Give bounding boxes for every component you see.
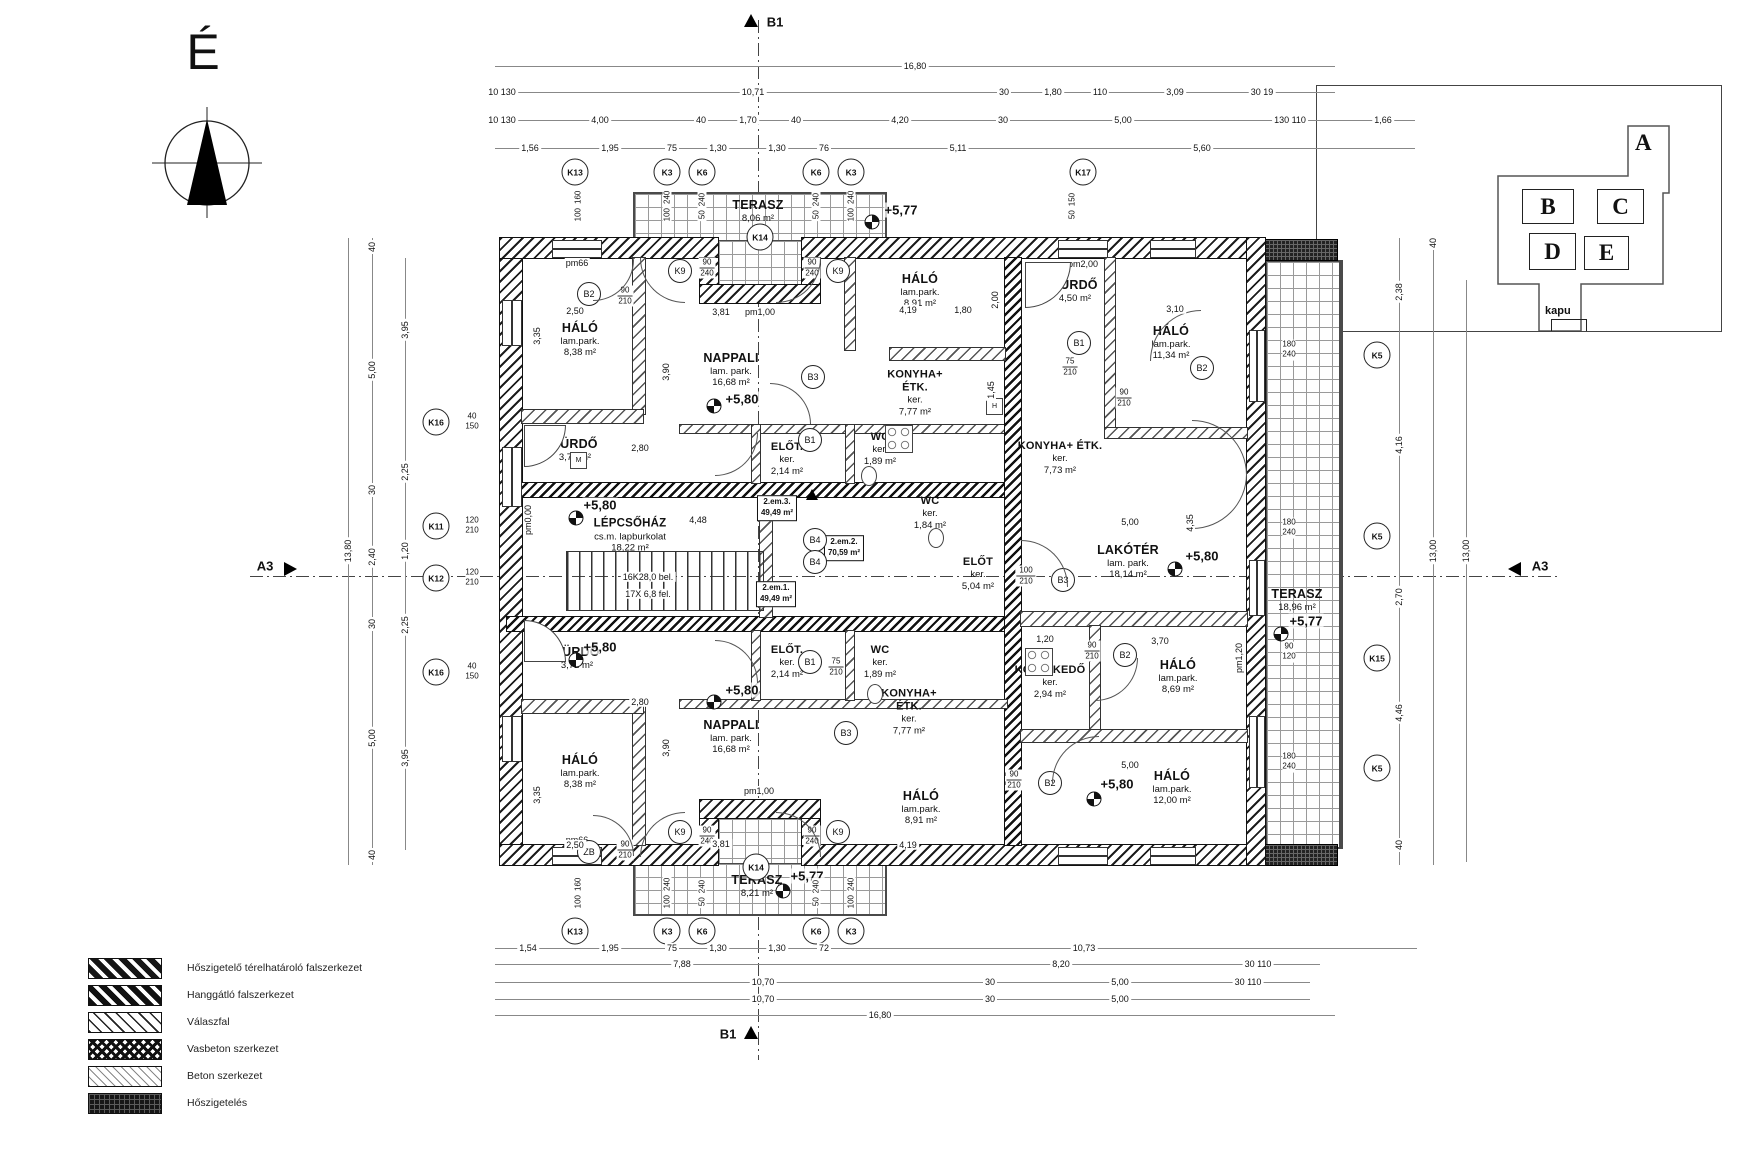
wall-partition: [890, 348, 1005, 360]
dim: 2,80: [629, 697, 651, 707]
dim-line: [495, 999, 1310, 1000]
wall-partition: [1105, 258, 1115, 433]
wall-partition: [1021, 612, 1247, 626]
dim: 1,30: [707, 143, 729, 153]
wall-partition: [846, 631, 854, 700]
dim: 40: [694, 115, 708, 125]
dim: 2,25: [400, 461, 410, 483]
wall-partition: [522, 700, 643, 713]
dim: 4,35: [1185, 512, 1195, 534]
stair-note-up: 17X 6,8 fel.: [623, 589, 673, 599]
dim: 75: [665, 943, 679, 953]
dim: 3,35: [532, 784, 542, 806]
dim: 1,20: [1034, 634, 1056, 644]
opening-size: 180240: [1282, 340, 1295, 361]
wall-party-vertical: [1005, 258, 1021, 845]
grid-marker: K6: [689, 918, 716, 945]
dim: 3,70: [1149, 636, 1171, 646]
terrace-door: [1249, 560, 1265, 616]
wc-fixture: [861, 466, 877, 486]
room-label-stair: LÉPCSŐHÁZ cs.m. lapburkolat 18,22 m²: [594, 518, 667, 555]
window: [502, 447, 522, 507]
door-swing: [1095, 658, 1138, 701]
dim: 2,00: [990, 289, 1000, 311]
opening-size: 120210: [465, 568, 478, 589]
wc-fixture: [928, 528, 944, 548]
dim: 10,71: [740, 87, 767, 97]
dim: 5,00: [1109, 977, 1131, 987]
dim: 30: [367, 617, 377, 631]
wall-partition: [1021, 730, 1247, 742]
legend: Hőszigetelő térelhatároló falszerkezet H…: [88, 958, 488, 1128]
grid-marker: K16: [423, 659, 450, 686]
dim: 30: [367, 483, 377, 497]
door-swing: [593, 815, 634, 856]
dim: 1,56: [519, 143, 541, 153]
unit-id: 2.em.2.: [828, 537, 860, 548]
grid-marker: K16: [423, 409, 450, 436]
opening-size: 100240: [663, 876, 672, 911]
dim: 2,40: [367, 546, 377, 568]
legend-swatch-reinforced-concrete: [88, 1039, 162, 1060]
dim: 3,95: [400, 319, 410, 341]
grid-marker: K14: [743, 854, 770, 881]
grid-marker: K3: [654, 159, 681, 186]
door-size: 75210: [828, 657, 845, 678]
dim: 2,50: [564, 840, 586, 850]
dim: 2,80: [629, 443, 651, 453]
section-arrow-b1-bottom: [744, 1026, 758, 1039]
dim: 5,00: [1119, 760, 1141, 770]
level-mark-terrace: +5,77: [1289, 614, 1324, 629]
unit-area: 49,49 m²: [761, 508, 793, 519]
wall-partition: [633, 258, 645, 414]
dim: 2,25: [400, 614, 410, 636]
dim: 4,46: [1394, 702, 1404, 724]
opening-size: 40150: [465, 412, 478, 433]
legend-swatch-soundproof-wall: [88, 985, 162, 1006]
unit-area: 70,59 m²: [828, 548, 860, 559]
legend-label: Vasbeton szerkezet: [187, 1043, 278, 1055]
grid-marker: K15: [1364, 645, 1391, 672]
level-symbol: [1168, 562, 1183, 577]
dim: 1,30: [766, 943, 788, 953]
dim-line: [495, 92, 1335, 93]
terrace-door: [1249, 330, 1265, 402]
opening-size: 40150: [465, 662, 478, 683]
door-tag: B4: [803, 528, 827, 552]
door-swing: [1192, 474, 1247, 529]
level-symbol: [865, 215, 880, 230]
room-elot-top: ELŐT.ker.2,14 m²: [771, 441, 803, 477]
room-konyha-top: KONYHA+ÉTK.ker.7,77 m²: [887, 368, 943, 417]
room-halo-bottom-mid: HÁLÓlam.park.8,91 m²: [901, 789, 940, 827]
dim: 13,00: [1461, 538, 1471, 565]
terrace-right: [1265, 260, 1343, 849]
window: [1150, 240, 1196, 258]
door-swing: [770, 383, 811, 424]
dim-line: [495, 1015, 1335, 1016]
level-mark: +5,80: [583, 498, 618, 513]
key-plan-building-b: B: [1522, 189, 1574, 224]
dim: 2,50: [564, 306, 586, 316]
door-tag: B1: [798, 428, 822, 452]
dim: 30: [983, 977, 997, 987]
dim: 40: [367, 240, 377, 254]
window: [502, 716, 522, 762]
opening-size: 120210: [465, 516, 478, 537]
grid-marker: K17: [1070, 159, 1097, 186]
section-label-a3-left: A3: [257, 559, 274, 574]
grid-marker: K6: [689, 159, 716, 186]
key-plan-building-e-highlighted: E: [1584, 236, 1629, 270]
grid-marker: K3: [838, 159, 865, 186]
parapet-mark: pm66: [565, 258, 590, 268]
legend-swatch-thermal-insulation: [88, 1093, 162, 1114]
wall-partition: [522, 410, 643, 423]
door-swing: [1052, 736, 1099, 783]
dim: 40: [1428, 236, 1438, 250]
dim: 5,11: [948, 143, 969, 153]
door-swing: [1021, 540, 1068, 587]
legend-label: Válaszfal: [187, 1016, 230, 1028]
wall-partition: [680, 425, 1007, 433]
level-symbol: [707, 695, 722, 710]
room-halo-top-left: HÁLÓlam.park.8,38 m²: [560, 321, 599, 359]
dim: 2,70: [1394, 586, 1404, 608]
stair-direction-arrow: [806, 489, 818, 500]
dim: 40: [789, 115, 803, 125]
opening-size: 50240: [698, 191, 707, 221]
dim: 1,54: [517, 943, 539, 953]
dim: 75: [665, 143, 679, 153]
level-symbol: [1087, 792, 1102, 807]
stair-area: 18,22 m²: [594, 543, 667, 554]
dim: 3,09: [1164, 87, 1186, 97]
room-wc-right: WCker.1,84 m²: [914, 495, 946, 531]
unit-box-2em2: 2.em.2. 70,59 m²: [824, 535, 864, 561]
dim: 5,00: [1109, 994, 1131, 1004]
dim: 10,73: [1071, 943, 1098, 953]
wall-recess-bottom-parapet: [700, 800, 820, 818]
dim: 76: [817, 143, 831, 153]
level-mark: +5,80: [1100, 777, 1135, 792]
legend-label: Hőszigetelés: [187, 1097, 247, 1109]
dim: 1,30: [766, 143, 788, 153]
dim-line: [495, 948, 1417, 949]
dim: 4,48: [687, 515, 709, 525]
dim-line: [1466, 280, 1467, 862]
dim: 1,45: [986, 379, 996, 401]
legend-swatch-insulating-wall: [88, 958, 162, 979]
opening-size: 50240: [812, 191, 821, 221]
dim: 10 130: [486, 115, 518, 125]
level-symbol: [707, 399, 722, 414]
grid-marker: K12: [423, 565, 450, 592]
wall-partition: [633, 700, 645, 845]
room-konyha-right: KONYHA+ ÉTK.ker.7,73 m²: [1018, 440, 1103, 476]
grid-marker: K13: [562, 918, 589, 945]
level-mark: +5,80: [583, 640, 618, 655]
insulation-cap-top: [1265, 240, 1337, 260]
room-nappali-bottom: NAPPALIlam. park.16,68 m²: [703, 718, 758, 756]
section-arrow-b1-top: [744, 14, 758, 27]
dim: 130 110: [1272, 115, 1308, 125]
dim: 3,90: [661, 361, 671, 383]
room-halo-bottom-left: HÁLÓlam.park.8,38 m²: [560, 753, 599, 791]
insulation-cap-bottom: [1265, 845, 1337, 865]
level-mark: +5,80: [725, 683, 760, 698]
room-konyha-bottom: KONYHA+ÉTK.ker.7,77 m²: [881, 687, 937, 736]
door-size: 90210: [1116, 388, 1133, 409]
north-compass-icon: [150, 105, 265, 220]
dim: 10,70: [750, 994, 777, 1004]
door-tag: B4: [803, 550, 827, 574]
level-symbol: [776, 884, 791, 899]
section-label-b1-top: B1: [767, 15, 784, 30]
dim: 5,00: [367, 727, 377, 749]
parapet-mark: pm1,00: [744, 307, 776, 317]
room-lakoter: LAKÓTÉRlam. park.18,14 m²: [1097, 543, 1159, 581]
grid-marker: K3: [838, 918, 865, 945]
dim-line: [1399, 238, 1400, 865]
dim: 72: [817, 943, 831, 953]
wall-partition: [846, 425, 854, 483]
dim: 3,81: [710, 307, 732, 317]
legend-swatch-partition: [88, 1012, 162, 1033]
door-tag: B1: [798, 650, 822, 674]
north-label: É: [186, 23, 219, 81]
dim: 4,20: [889, 115, 911, 125]
key-plan-gate-label: kapu: [1545, 305, 1571, 317]
opening-size: 50240: [812, 878, 821, 908]
unit-box-2em3: 2.em.3. 49,49 m²: [757, 495, 797, 521]
grid-marker: K13: [562, 159, 589, 186]
room-nappali-top: NAPPALIlam. park.16,68 m²: [703, 351, 758, 389]
dim: 10,70: [750, 977, 777, 987]
dim: 1,20: [400, 540, 410, 562]
parapet-mark: pm0,00: [523, 504, 533, 536]
unit-area: 49,49 m²: [760, 594, 792, 605]
section-arrow-a3-right: [1508, 562, 1521, 576]
stair-finish: cs.m. lapburkolat: [594, 532, 667, 543]
door-tag: B3: [801, 365, 825, 389]
door-size: 75210: [1062, 357, 1079, 378]
grid-marker: K14: [747, 224, 774, 251]
room-elot-right: ELŐTker.5,04 m²: [962, 556, 994, 592]
dim: 13,80: [343, 538, 353, 565]
parapet-mark: pm1,00: [743, 786, 775, 796]
grid-marker: K5: [1364, 755, 1391, 782]
door-tag: B3: [834, 721, 858, 745]
opening-size: 50240: [698, 878, 707, 908]
section-arrow-a3-left: [284, 562, 297, 576]
dim: 1,80: [1042, 87, 1064, 97]
dim: 1,66: [1372, 115, 1394, 125]
dim: 4,19: [897, 305, 919, 315]
legend-label: Beton szerkezet: [187, 1070, 262, 1082]
opening-size: 100240: [847, 189, 856, 224]
dim: 2,38: [1394, 281, 1404, 303]
dim: 1,95: [599, 143, 621, 153]
opening-size: 180240: [1282, 518, 1295, 539]
opening-size: 180240: [1282, 752, 1295, 773]
door-size: 90210: [1006, 770, 1023, 791]
wall-outer-top-a: [500, 238, 718, 258]
dim: 3,10: [1164, 304, 1186, 314]
key-plan-building-c: C: [1597, 189, 1644, 224]
dim: 1,95: [599, 943, 621, 953]
legend-label: Hőszigetelő térelhatároló falszerkezet: [187, 962, 362, 974]
unit-id: 2.em.1.: [760, 583, 792, 594]
dim: 1,70: [737, 115, 759, 125]
opening-size: 100160: [574, 189, 583, 224]
dim: 30 110: [1233, 977, 1264, 987]
stove-fixture: [885, 425, 913, 453]
legend-swatch-concrete: [88, 1066, 162, 1087]
dim: 110: [1091, 87, 1109, 97]
floor-plan-drawing: É A B C D E kapu A3 A3 B1 B1: [0, 0, 1761, 1172]
dim: 30 110: [1243, 959, 1274, 969]
dim: 3,81: [710, 839, 732, 849]
room-halo-869: HÁLÓlam.park.8,69 m²: [1158, 658, 1197, 696]
dim: 5,00: [1112, 115, 1134, 125]
dim: 7,88: [671, 959, 693, 969]
door-tag: B1: [1067, 331, 1091, 355]
window: [1058, 847, 1108, 865]
dim: 4,19: [897, 840, 919, 850]
room-terasz-top: TERASZ8,06 m²: [732, 198, 783, 224]
level-mark-terrace: +5,77: [884, 203, 919, 218]
room-terasz-right: TERASZ18,96 m²: [1271, 587, 1322, 613]
unit-box-2em1: 2.em.1. 49,49 m²: [756, 581, 796, 607]
window: [1150, 847, 1196, 865]
section-label-a3-right: A3: [1532, 559, 1549, 574]
washer-appliance: M: [570, 452, 587, 469]
dim-line: [495, 964, 1320, 965]
level-symbol: [569, 653, 584, 668]
dim: 16,80: [902, 61, 929, 71]
level-symbol: [569, 511, 584, 526]
window: [502, 300, 522, 346]
parapet-mark: pm2,00: [1067, 259, 1099, 269]
dim: 5,60: [1191, 143, 1213, 153]
dim: 1,30: [707, 943, 729, 953]
door-tag: K9: [826, 820, 850, 844]
room-wc-bottom: WCker.1,89 m²: [864, 644, 896, 680]
dim: 16,80: [867, 1010, 894, 1020]
dim: 30: [997, 87, 1011, 97]
stove-fixture: [1025, 648, 1053, 676]
grid-marker: K5: [1364, 523, 1391, 550]
dim: 40: [367, 848, 377, 862]
opening-size: 90120: [1282, 642, 1295, 663]
door-swing: [640, 258, 685, 303]
dim: 4,16: [1394, 434, 1404, 456]
wall-partition: [680, 700, 1007, 708]
dim: 5,00: [367, 359, 377, 381]
unit-id: 2.em.3.: [761, 497, 793, 508]
level-mark: +5,80: [1185, 549, 1220, 564]
key-plan-building-d: D: [1529, 233, 1576, 270]
dim: 13,00: [1428, 538, 1438, 565]
dim: 1,80: [952, 305, 974, 315]
legend-label: Hanggátló falszerkezet: [187, 989, 294, 1001]
opening-size: 100240: [847, 876, 856, 911]
dim: 30 19: [1249, 87, 1276, 97]
door-swing: [640, 812, 685, 857]
dim: 8,20: [1050, 959, 1072, 969]
key-plan-gate-symbol: [1551, 319, 1587, 332]
stair-name: LÉPCSŐHÁZ: [594, 518, 667, 532]
door-swing: [1150, 310, 1201, 361]
grid-marker: K5: [1364, 342, 1391, 369]
grid-marker: K6: [803, 918, 830, 945]
opening-size: 50150: [1068, 191, 1077, 221]
dim: 3,35: [532, 325, 542, 347]
dim: 3,95: [400, 747, 410, 769]
door-size: 90240: [699, 258, 716, 279]
wall-party-stair-bottom: [507, 617, 1007, 631]
window: [1058, 240, 1108, 258]
stair-note-down: 16K28,0 bel.: [621, 572, 676, 582]
opening-size: 100240: [663, 189, 672, 224]
level-mark: +5,80: [725, 392, 760, 407]
dim: 10 130: [486, 87, 518, 97]
dim-line: [495, 982, 1310, 983]
dim: 3,90: [661, 737, 671, 759]
parapet-mark: pm1,20: [1234, 642, 1244, 674]
dim: 5,00: [1119, 517, 1141, 527]
key-plan-building-a-label: A: [1635, 130, 1652, 156]
room-halo-1200: HÁLÓlam.park.12,00 m²: [1152, 769, 1191, 807]
dim: 30: [996, 115, 1010, 125]
dim: 4,00: [589, 115, 611, 125]
grid-marker: K6: [803, 159, 830, 186]
section-label-b1-bottom: B1: [720, 1027, 737, 1042]
dim: 30: [983, 994, 997, 1004]
terrace-door: [1249, 716, 1265, 788]
grid-marker: K3: [654, 918, 681, 945]
grid-marker: K11: [423, 513, 450, 540]
opening-size: 100160: [574, 876, 583, 911]
level-symbol: [1274, 627, 1289, 642]
window: [552, 240, 602, 258]
wc-fixture: [867, 684, 883, 704]
dim: 40: [1394, 838, 1404, 852]
door-tag: K9: [826, 259, 850, 283]
